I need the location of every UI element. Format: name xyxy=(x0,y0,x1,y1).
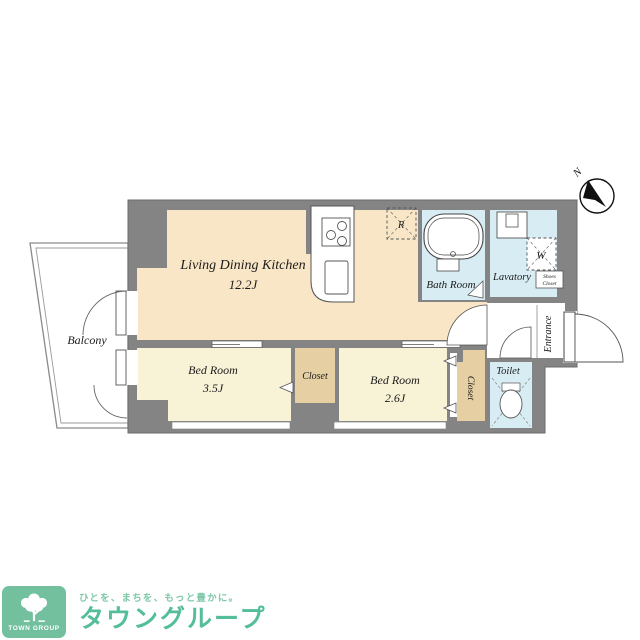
entrance-door-arc xyxy=(575,314,623,362)
kitchen-counter xyxy=(306,206,354,302)
label-shoes-closet-1: Shoes xyxy=(543,274,556,280)
sliding-door-bedroom1 xyxy=(212,341,262,348)
bathtub-icon xyxy=(424,214,483,259)
label-fridge: R xyxy=(397,220,404,231)
town-group-logo: TOWN GROUP xyxy=(2,586,66,638)
tree-icon xyxy=(12,592,56,624)
door-leaf xyxy=(116,291,126,335)
label-shoes-closet-2: Closet xyxy=(542,281,557,287)
door-leaf xyxy=(116,350,126,385)
entrance-door-leaf xyxy=(564,312,575,362)
window-bedroom2 xyxy=(334,422,446,429)
footer-brand: TOWN GROUP ひとを、まちを、もっと豊かに。 タウングループ xyxy=(2,586,622,640)
footer-text: ひとを、まちを、もっと豊かに。 タウングループ xyxy=(79,586,267,634)
label-ldk-size: 12.2J xyxy=(229,277,259,292)
logo-badge-text: TOWN GROUP xyxy=(8,625,59,632)
label-balcony: Balcony xyxy=(67,333,107,347)
window-bedroom1 xyxy=(172,422,290,429)
stove-icon xyxy=(322,218,350,246)
label-closet-middle: Closet xyxy=(302,371,328,382)
compass-north-label: N xyxy=(570,165,585,180)
label-bedroom1-name: Bed Room xyxy=(188,363,238,377)
door-opening xyxy=(126,350,138,385)
label-bath: Bath Room xyxy=(426,279,475,291)
balcony: Balcony xyxy=(30,243,128,428)
label-entrance: Entrance xyxy=(543,315,554,353)
label-washer: W xyxy=(536,250,546,262)
label-lavatory: Lavatory xyxy=(492,272,531,283)
kitchen-sink-icon xyxy=(325,261,348,294)
washbasin-faucet xyxy=(506,214,518,227)
label-ldk-name: Living Dining Kitchen xyxy=(179,258,305,273)
label-bedroom1-size: 3.5J xyxy=(202,381,224,395)
label-toilet: Toilet xyxy=(496,366,521,377)
toilet-bowl-icon xyxy=(500,390,522,418)
label-bedroom2-name: Bed Room xyxy=(370,373,420,387)
brand-tagline: ひとを、まちを、もっと豊かに。 xyxy=(79,590,267,604)
label-closet-bedroom2: Closet xyxy=(465,376,475,401)
label-bedroom2-size: 2.6J xyxy=(385,391,406,405)
brand-name: タウングループ xyxy=(79,606,267,634)
door-opening xyxy=(126,291,138,335)
shoes-closet: Shoes Closet xyxy=(536,271,563,288)
bath-counter xyxy=(437,259,459,271)
floor-plan: N Balcony xyxy=(0,0,640,640)
